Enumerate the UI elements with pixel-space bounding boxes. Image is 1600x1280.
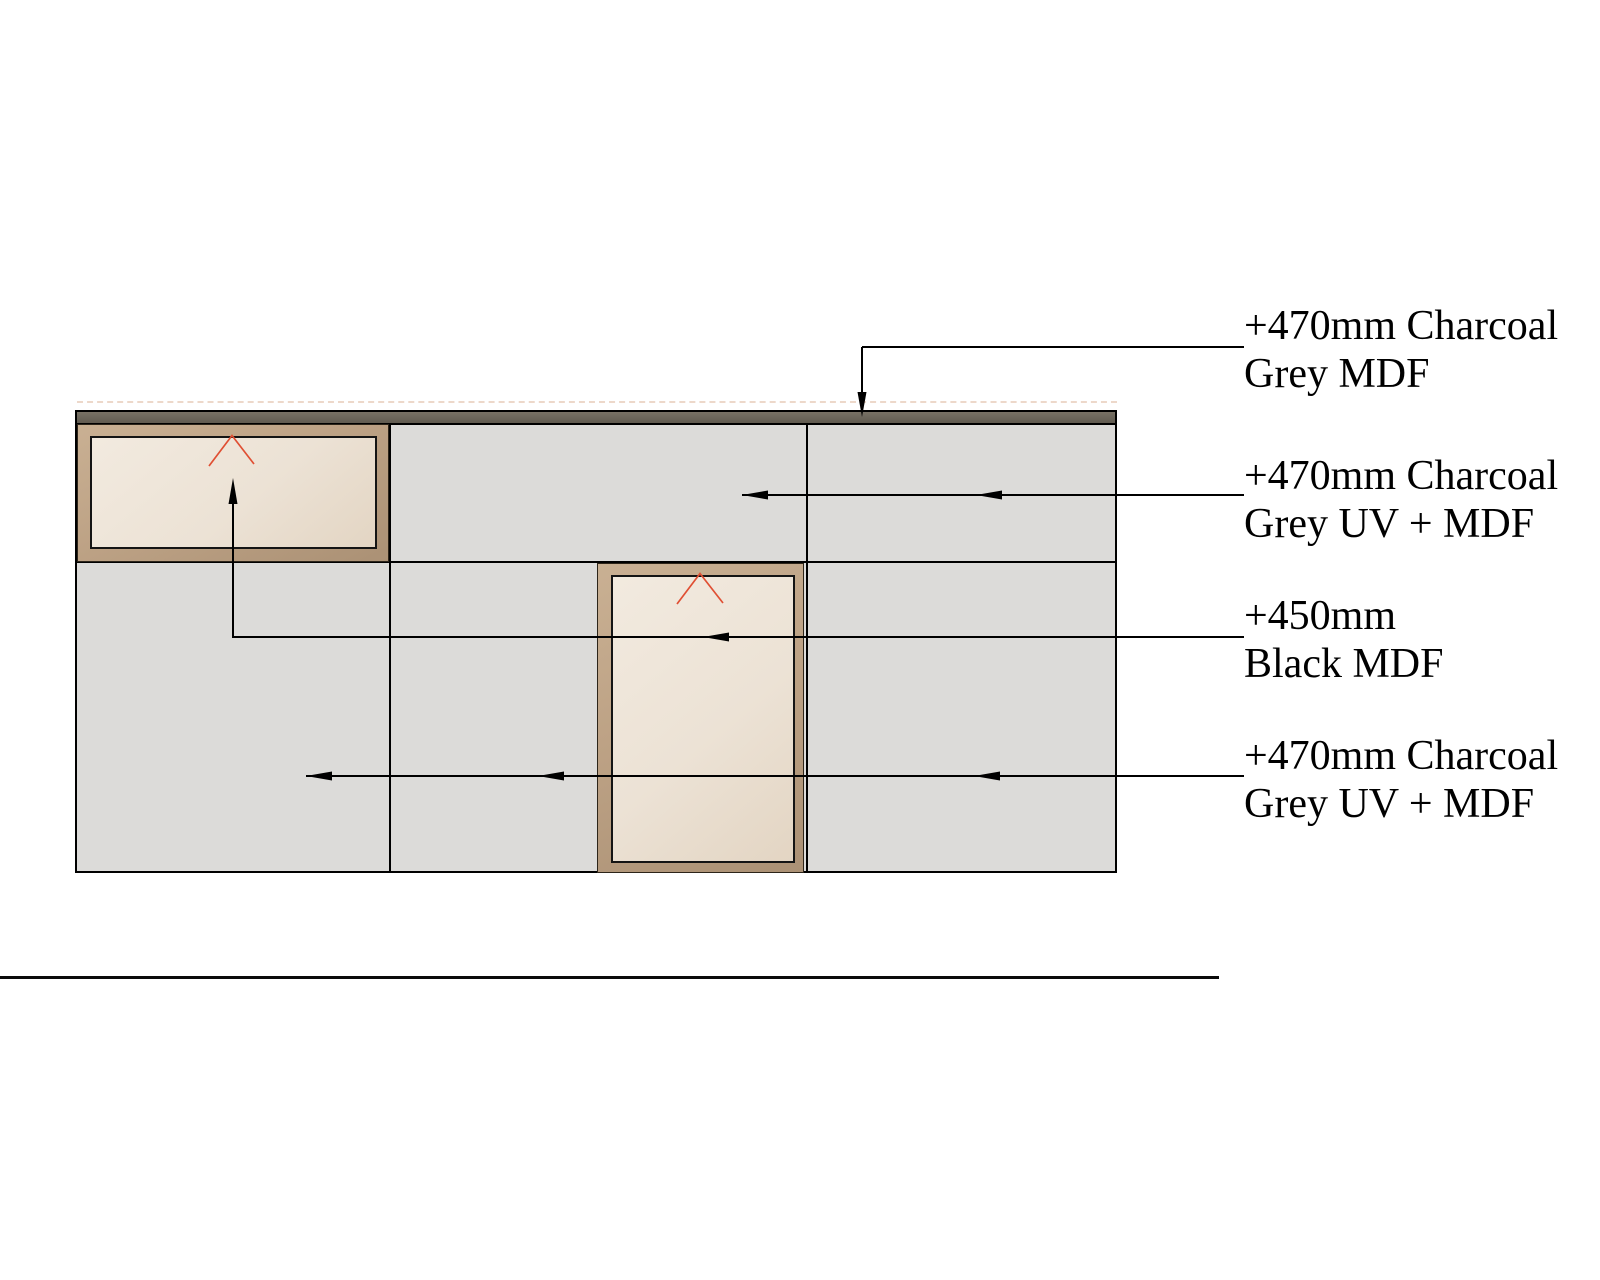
annotation-label-row2: +470mm Charcoal Grey UV + MDF [1244, 732, 1574, 828]
annotation-line: +470mm Charcoal [1244, 452, 1574, 500]
arrowhead-left-icon [976, 491, 1002, 500]
annotation-line: Grey UV + MDF [1244, 500, 1574, 548]
ground-line [0, 976, 1219, 979]
direction-chevron-icon [677, 574, 723, 605]
direction-chevron-icon [209, 436, 254, 467]
arrowhead-down-icon [858, 392, 867, 417]
arrowhead-left-icon [742, 491, 768, 500]
elevation-drawing: +470mm Charcoal Grey MDF +470mm Charcoal… [0, 0, 1600, 1280]
leader-line-top-strip [862, 347, 1244, 392]
arrowhead-left-icon [974, 772, 1000, 781]
annotation-line: Black MDF [1244, 640, 1574, 688]
arrowhead-left-icon [703, 633, 729, 642]
arrowhead-left-icon [306, 772, 332, 781]
annotation-line: +450mm [1244, 592, 1574, 640]
annotation-label-top-strip: +470mm Charcoal Grey MDF [1244, 302, 1574, 398]
leader-line-black-mdf [233, 504, 1244, 637]
arrowhead-left-icon [538, 772, 564, 781]
arrowhead-up-icon [229, 478, 238, 504]
annotation-line: +470mm Charcoal [1244, 732, 1574, 780]
annotation-line: Grey UV + MDF [1244, 780, 1574, 828]
annotation-line: Grey MDF [1244, 350, 1574, 398]
annotation-line: +470mm Charcoal [1244, 302, 1574, 350]
annotation-label-black-mdf: +450mm Black MDF [1244, 592, 1574, 688]
annotation-label-row1: +470mm Charcoal Grey UV + MDF [1244, 452, 1574, 548]
